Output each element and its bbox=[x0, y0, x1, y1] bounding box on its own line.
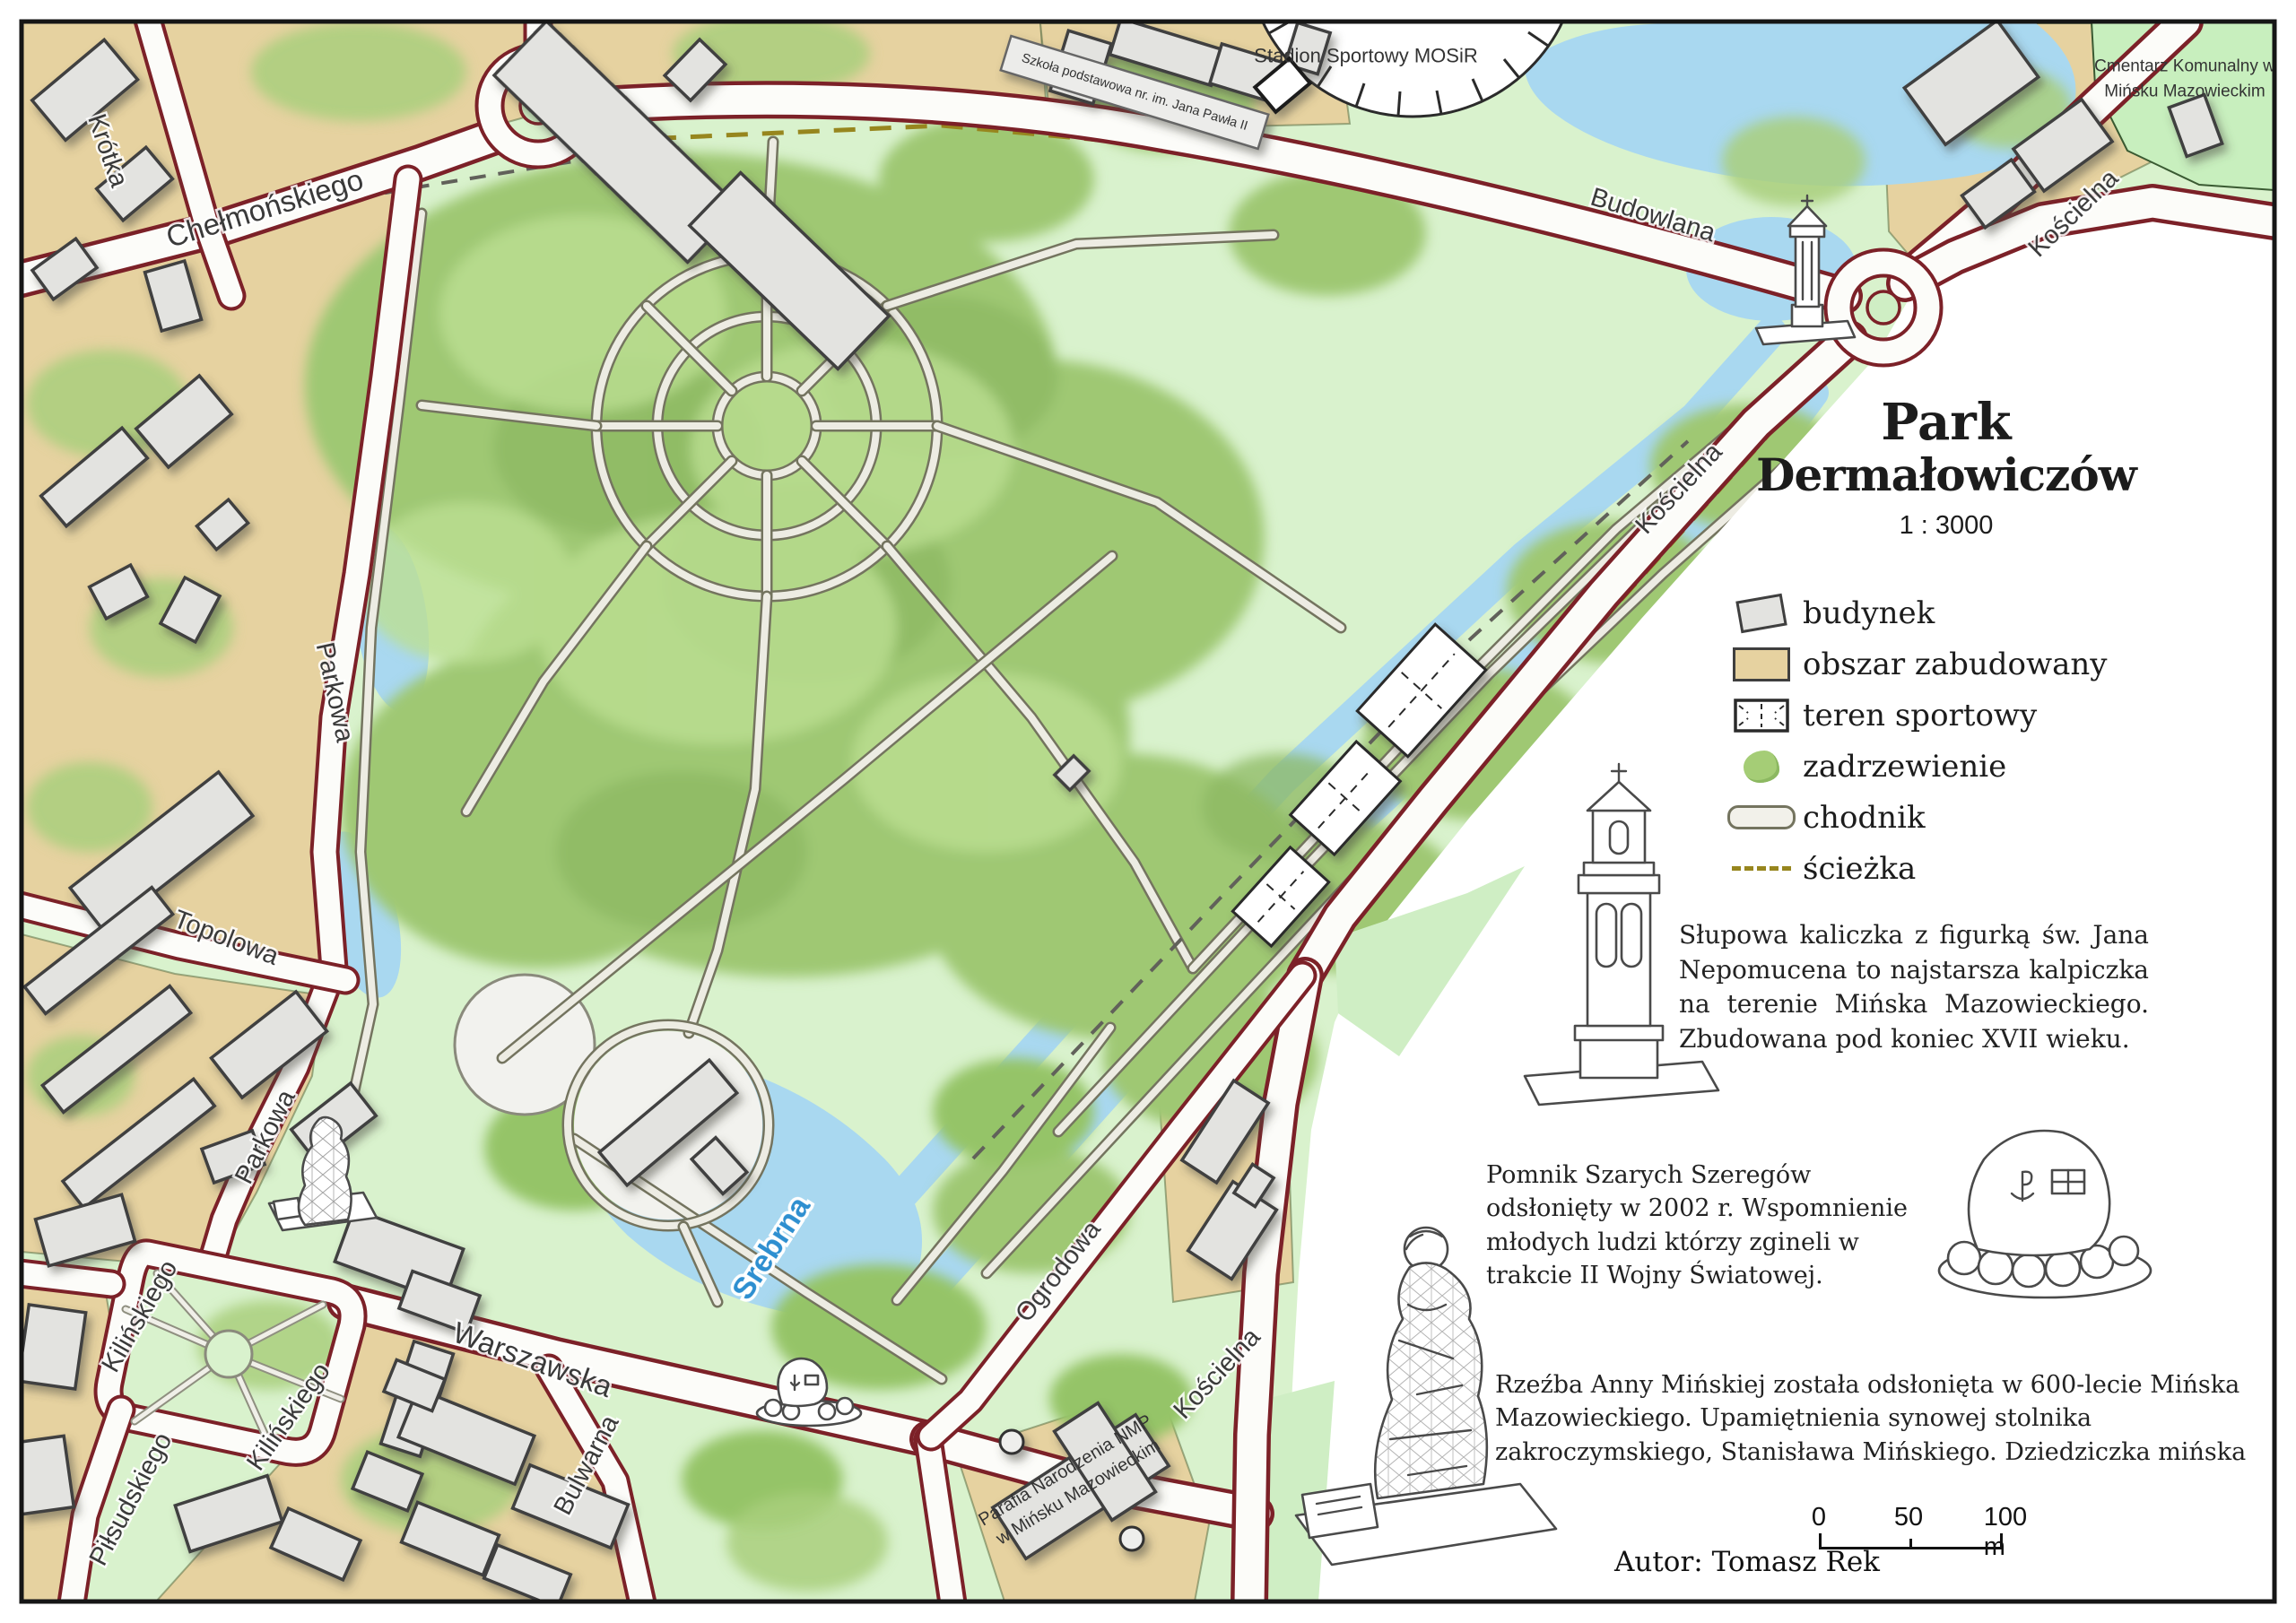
built-up-swatch-icon bbox=[1733, 647, 1790, 681]
roundabout-northeast bbox=[1839, 263, 1928, 352]
sidewalk-swatch-icon bbox=[1727, 805, 1796, 829]
legend-label: zadrzewienie bbox=[1803, 749, 2006, 785]
title-block: Park Dermałowiczów 1 : 3000 bbox=[1722, 396, 2170, 541]
page-title-line1: Park bbox=[1722, 396, 2170, 449]
map-scale-text: 1 : 3000 bbox=[1722, 511, 2170, 541]
map-sheet: Krótka Chełmońskiego Parkowa Parkowa Top… bbox=[0, 0, 2296, 1623]
legend-row-sidewalk: chodnik bbox=[1720, 792, 2222, 843]
path-swatch-icon bbox=[1732, 866, 1791, 871]
legend: budynek obszar zabudowany teren sportowy… bbox=[1720, 587, 2222, 894]
building-swatch-icon bbox=[1735, 593, 1787, 632]
legend-row-built-up: obszar zabudowany bbox=[1720, 638, 2222, 690]
legend-label: ścieżka bbox=[1803, 851, 1916, 887]
legend-row-path: ścieżka bbox=[1720, 843, 2222, 894]
scale-tick-100-label: 100 m bbox=[1984, 1503, 2027, 1562]
sports-area-swatch-icon bbox=[1734, 699, 1789, 733]
author-credit: Autor: Tomasz Rek bbox=[1614, 1546, 1880, 1578]
legend-row-building: budynek bbox=[1720, 587, 2222, 638]
scale-tick-0-label: 0 bbox=[1812, 1503, 1826, 1532]
annotation-monument-text: Pomnik Szarych Szeregów odsłonięty w 200… bbox=[1486, 1159, 1927, 1292]
legend-label: chodnik bbox=[1803, 800, 1926, 836]
legend-label: budynek bbox=[1803, 595, 1935, 631]
poi-label-cemetery-line1: Cmentarz Komunalny w bbox=[2094, 57, 2275, 76]
poi-label-cemetery-line2: Mińsku Mazowieckim bbox=[2104, 82, 2265, 101]
page-title-line2: Dermałowiczów bbox=[1722, 449, 2170, 501]
scale-tick-50-label: 50 bbox=[1894, 1503, 1923, 1532]
trees-swatch-icon bbox=[1744, 751, 1779, 783]
scale-bar: 0 50 100 m bbox=[1810, 1503, 2025, 1551]
legend-label: teren sportowy bbox=[1803, 698, 2037, 733]
legend-row-sports: teren sportowy bbox=[1720, 690, 2222, 741]
legend-row-trees: zadrzewienie bbox=[1720, 741, 2222, 792]
annotation-statue-text: Rzeźba Anny Mińskiej została odsłonięta … bbox=[1495, 1368, 2253, 1469]
annotation-shrine-text: Słupowa kaliczka z figurką św. Jana Nepo… bbox=[1679, 918, 2149, 1057]
scale-bar-mid-tick bbox=[1909, 1539, 1912, 1547]
legend-label: obszar zabudowany bbox=[1803, 647, 2108, 682]
poi-label-stadium: Stadion Sportowy MOSiR bbox=[1254, 45, 1477, 67]
